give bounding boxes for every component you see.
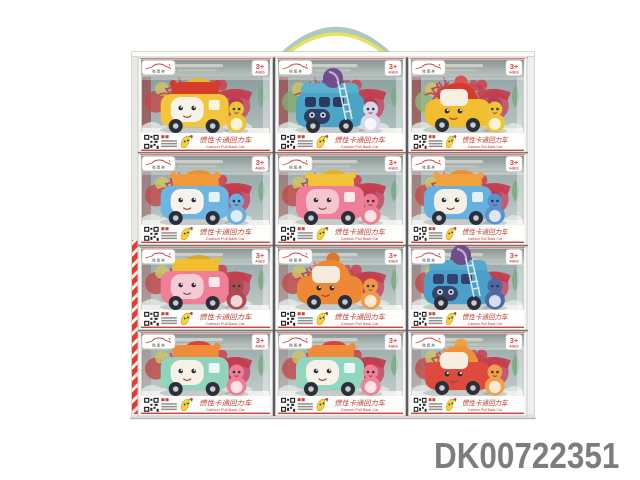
svg-text:DK00722351: DK00722351	[434, 436, 619, 477]
